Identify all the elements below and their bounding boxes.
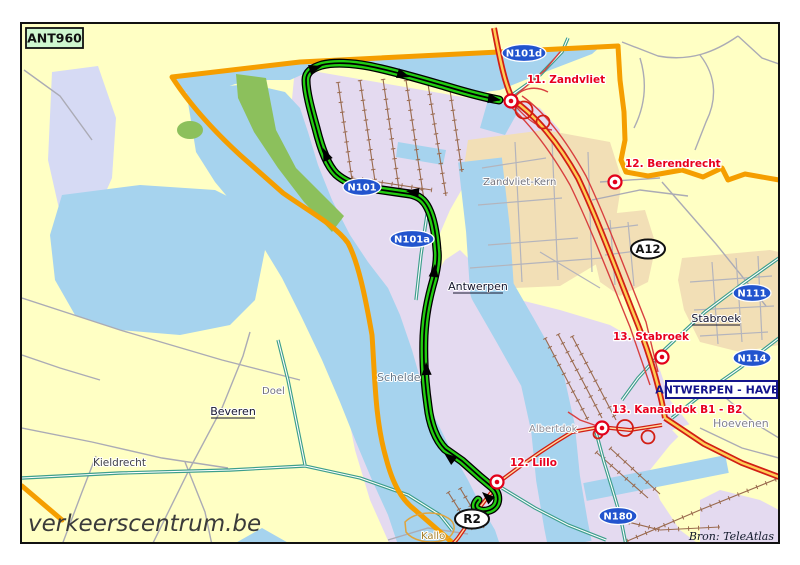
- watermark: verkeerscentrum.be: [28, 511, 261, 537]
- traffic-map-screenshot: Zandvliet-Kern Antwerpen Stabroek Bevere…: [0, 0, 800, 565]
- label-schelde: Schelde: [377, 371, 421, 384]
- label-hoevenen: Hoevenen: [713, 417, 769, 430]
- svg-text:N180: N180: [603, 512, 632, 523]
- area-box-label: ANTWERPEN - HAVEN: [655, 384, 788, 397]
- shield-n101: N101: [343, 179, 381, 196]
- shield-n101d: N101d: [502, 45, 546, 62]
- marker-kanaaldok: [596, 422, 609, 435]
- label-point-lillo: 12. Lillo: [510, 457, 557, 469]
- svg-text:N114: N114: [737, 354, 766, 365]
- label-kallo: Kallo: [421, 531, 445, 542]
- marker-stabroek: [656, 351, 669, 364]
- label-doel: Doel: [262, 386, 285, 397]
- svg-text:N101: N101: [347, 183, 376, 194]
- label-point-stabroek: 13. Stabroek: [613, 331, 690, 343]
- label-albertdok: Albertdok: [529, 424, 578, 435]
- shield-n111: N111: [733, 285, 771, 302]
- area-box: ANTWERPEN - HAVEN: [655, 381, 788, 398]
- map-canvas: Zandvliet-Kern Antwerpen Stabroek Bevere…: [0, 0, 800, 565]
- shield-r2: R2: [455, 510, 489, 529]
- map-code-box: ANT960: [26, 28, 83, 48]
- source-credit: Bron: TeleAtlas: [688, 530, 775, 543]
- marker-lillo: [491, 476, 504, 489]
- shield-n101a: N101a: [390, 231, 434, 248]
- map-area: Zandvliet-Kern Antwerpen Stabroek Bevere…: [22, 24, 788, 545]
- svg-text:A12: A12: [636, 242, 661, 256]
- svg-text:R2: R2: [463, 512, 481, 526]
- label-point-berendrecht: 12. Berendrecht: [625, 158, 721, 170]
- label-zandvliet-kern: Zandvliet-Kern: [483, 177, 556, 188]
- svg-text:N101a: N101a: [394, 235, 430, 246]
- marker-berendrecht: [609, 176, 622, 189]
- label-point-zandvliet: 11. Zandvliet: [527, 74, 605, 86]
- label-point-kanaaldok: 13. Kanaaldok B1 - B2: [612, 404, 742, 416]
- svg-text:N101d: N101d: [506, 49, 542, 60]
- label-stabroek: Stabroek: [691, 312, 741, 325]
- shield-n114: N114: [733, 350, 771, 367]
- label-kieldrecht: Kieldrecht: [93, 457, 146, 469]
- svg-text:N111: N111: [737, 289, 766, 300]
- label-beveren: Beveren: [210, 405, 256, 418]
- map-code-label: ANT960: [27, 31, 82, 46]
- shield-n180: N180: [599, 508, 637, 525]
- label-antwerpen: Antwerpen: [448, 280, 508, 293]
- shield-a12: A12: [631, 240, 665, 259]
- marker-zandvliet: [505, 95, 518, 108]
